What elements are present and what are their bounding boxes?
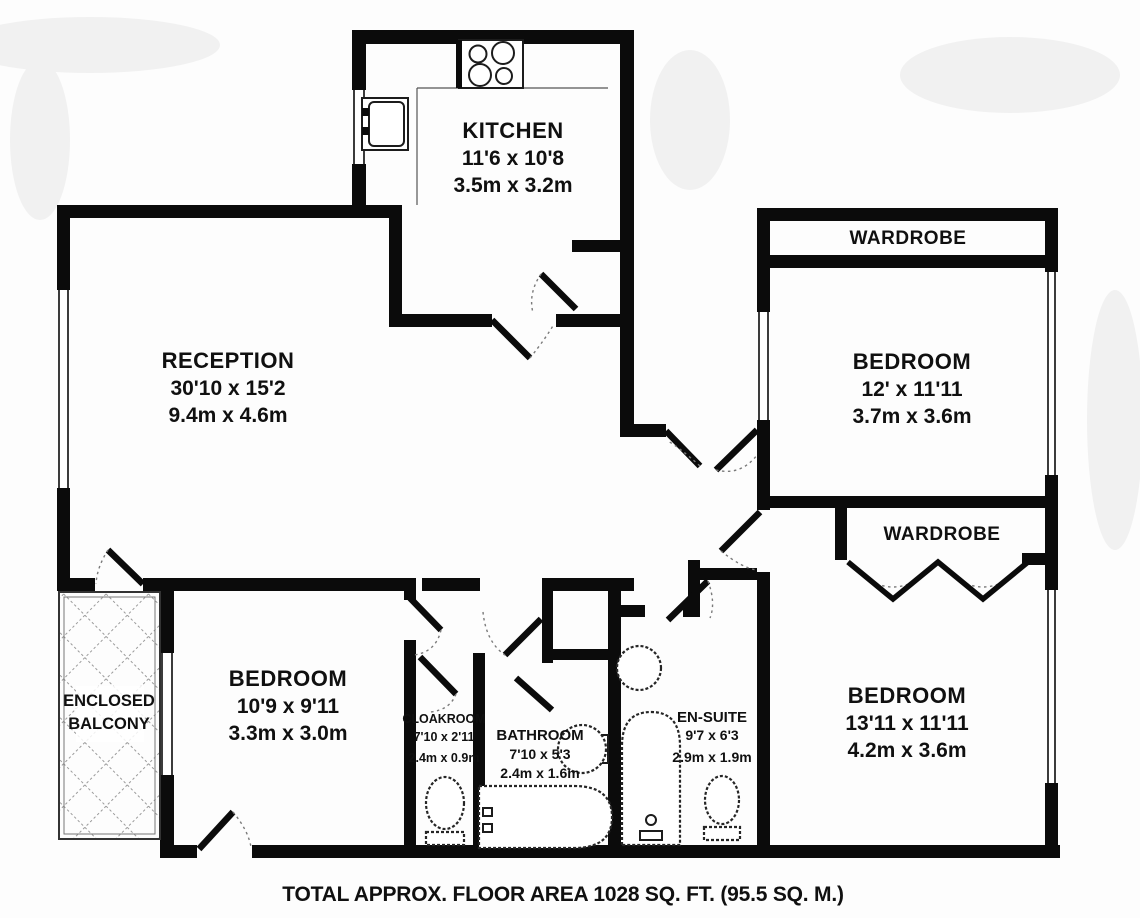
wall [389, 314, 492, 327]
wall [757, 255, 1058, 268]
window [1047, 272, 1056, 475]
room-dim-metric: 3.7m x 3.6m [852, 405, 971, 428]
wall [757, 208, 770, 268]
window [161, 653, 173, 775]
room-name: KITCHEN [462, 118, 563, 143]
room-dim-imperial: 10'9 x 9'11 [237, 695, 340, 718]
room-label-bedroom-bottom-left: BEDROOM 10'9 x 9'11 3.3m x 3.0m [228, 666, 347, 745]
room-dim-metric: 9.4m x 4.6m [168, 404, 287, 427]
room-dim-imperial: 9'7 x 6'3 [685, 727, 739, 743]
wall [352, 164, 366, 212]
room-name: EN-SUITE [677, 709, 747, 726]
window [58, 290, 69, 488]
room-name: BEDROOM [848, 683, 966, 708]
room-name: RECEPTION [162, 348, 295, 373]
room-dim-imperial: 7'10 x 2'11 [414, 730, 475, 744]
wall [757, 572, 770, 846]
wall [757, 208, 1058, 221]
room-dim-metric: 4.2m x 3.6m [847, 739, 966, 762]
room-name: CLOAKROOM [402, 712, 485, 726]
wall [160, 845, 197, 858]
bathtub-icon [622, 712, 680, 845]
room-name: BATHROOM [496, 727, 583, 744]
room-dim-metric: 2.4m x 1.6m [500, 765, 579, 781]
wall [620, 605, 645, 617]
room-name: BEDROOM [853, 349, 971, 374]
room-dim-imperial: 7'10 x 5'3 [509, 746, 570, 762]
room-dim-metric: 3.3m x 3.0m [228, 722, 347, 745]
wall [160, 591, 174, 653]
room-label-wardrobe-middle: WARDROBE [884, 524, 1001, 545]
wall [352, 30, 366, 90]
wall [835, 508, 847, 560]
room-label-kitchen: KITCHEN 11'6 x 10'8 3.5m x 3.2m [453, 118, 572, 197]
wall [404, 578, 416, 600]
floor-plan: ENCLOSED BALCONY [0, 0, 1140, 918]
wall [1045, 208, 1058, 272]
room-label-bathroom: BATHROOM 7'10 x 5'3 2.4m x 1.6m [496, 727, 583, 781]
room-name: BEDROOM [229, 666, 347, 691]
room-label-reception: RECEPTION 30'10 x 15'2 9.4m x 4.6m [162, 348, 295, 427]
wall [542, 578, 634, 591]
room-dim-imperial: 30'10 x 15'2 [170, 377, 285, 400]
wall [57, 205, 70, 290]
wall [57, 578, 95, 591]
room-label-bedroom-bottom-right: BEDROOM 13'11 x 11'11 4.2m x 3.6m [845, 683, 969, 762]
wall [57, 205, 402, 218]
wall [160, 775, 174, 845]
total-area-caption: TOTAL APPROX. FLOOR AREA 1028 SQ. FT. (9… [282, 883, 844, 906]
wall [422, 578, 480, 591]
balcony-label: ENCLOSED [63, 692, 155, 710]
stove-icon [456, 40, 523, 88]
wall [620, 424, 666, 437]
wall [695, 568, 757, 580]
room-label-wardrobe-top: WARDROBE [850, 228, 967, 249]
wall [757, 496, 1058, 508]
room-dim-imperial: 12' x 11'11 [861, 378, 962, 401]
sink-icon [362, 98, 408, 150]
wall [389, 205, 402, 327]
balcony-label: BALCONY [68, 715, 150, 733]
bathtub-icon [479, 786, 612, 848]
wall [1045, 475, 1058, 590]
wall [572, 240, 634, 252]
wall [57, 488, 70, 591]
wall [542, 578, 553, 663]
room-dim-metric: 2.4m x 0.9m [409, 751, 480, 765]
room-dim-metric: 2.9m x 1.9m [672, 749, 751, 765]
window [1047, 590, 1056, 783]
wall [143, 578, 413, 591]
room-name: WARDROBE [884, 524, 1001, 545]
room-dim-imperial: 13'11 x 11'11 [845, 712, 969, 735]
wall [556, 314, 634, 327]
wall [757, 265, 770, 312]
room-dim-metric: 3.5m x 3.2m [453, 174, 572, 197]
toilet-icon [704, 776, 740, 840]
room-dim-imperial: 11'6 x 10'8 [462, 147, 565, 170]
room-name: WARDROBE [850, 228, 967, 249]
cloakroom-fixtures [426, 777, 464, 845]
wall [620, 30, 634, 437]
room-label-cloakroom: CLOAKROOM 7'10 x 2'11 2.4m x 0.9m [402, 712, 485, 765]
toilet-icon [426, 777, 464, 845]
room-label-bedroom-top-right: BEDROOM 12' x 11'11 3.7m x 3.6m [852, 349, 971, 428]
basin-icon [617, 646, 661, 690]
doorway-frame [758, 312, 769, 420]
wall [553, 649, 610, 660]
balcony: ENCLOSED BALCONY [59, 592, 160, 839]
wall [252, 845, 1060, 858]
